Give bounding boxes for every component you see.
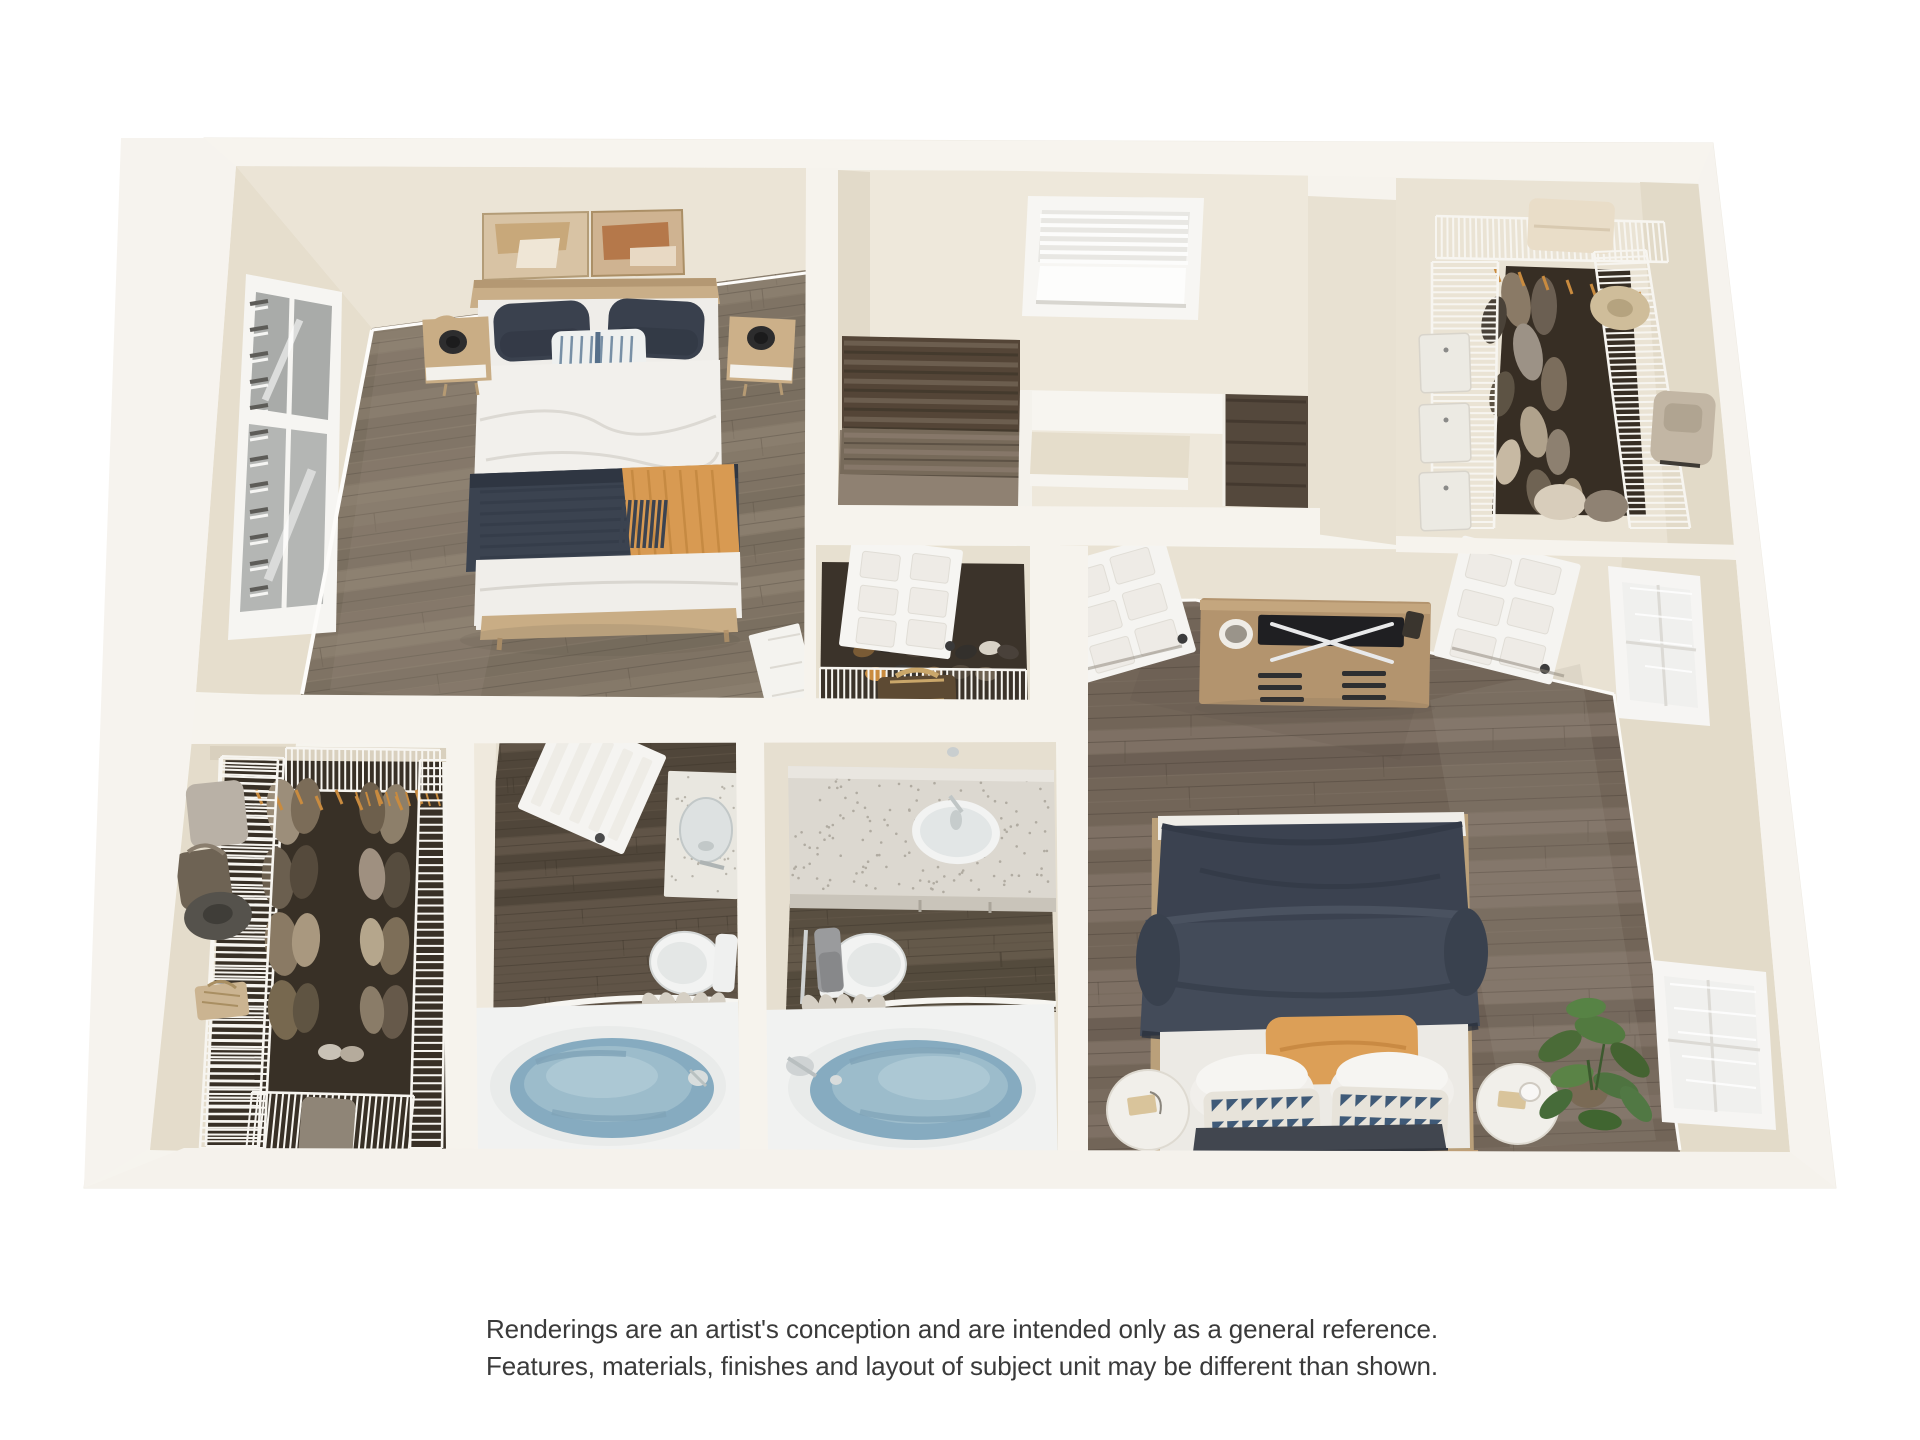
svg-text:Renderings are an artist's con: Renderings are an artist's conception an… <box>486 1314 1438 1344</box>
svg-text:Features, materials, finishes: Features, materials, finishes and layout… <box>486 1351 1438 1381</box>
